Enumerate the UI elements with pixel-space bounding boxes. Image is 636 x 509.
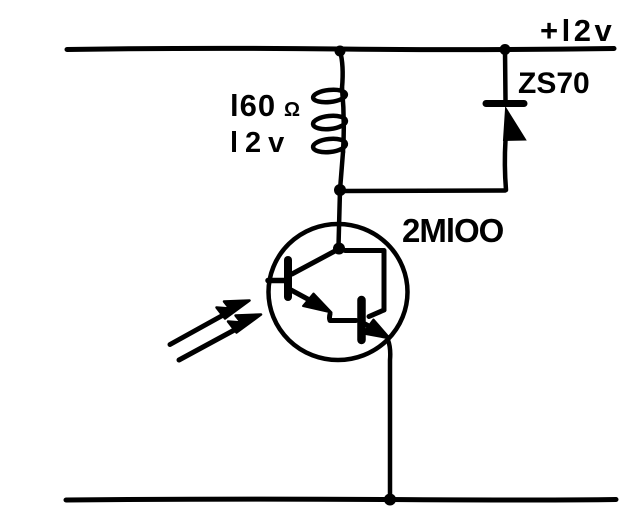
- svg-text:+l2v: +l2v: [540, 13, 615, 48]
- svg-text:Ω: Ω: [284, 99, 300, 121]
- svg-text:l60: l60: [230, 88, 276, 123]
- svg-text:ZS70: ZS70: [518, 67, 590, 100]
- svg-text:l2v: l2v: [230, 127, 291, 159]
- svg-text:2MlOO: 2MlOO: [402, 212, 504, 249]
